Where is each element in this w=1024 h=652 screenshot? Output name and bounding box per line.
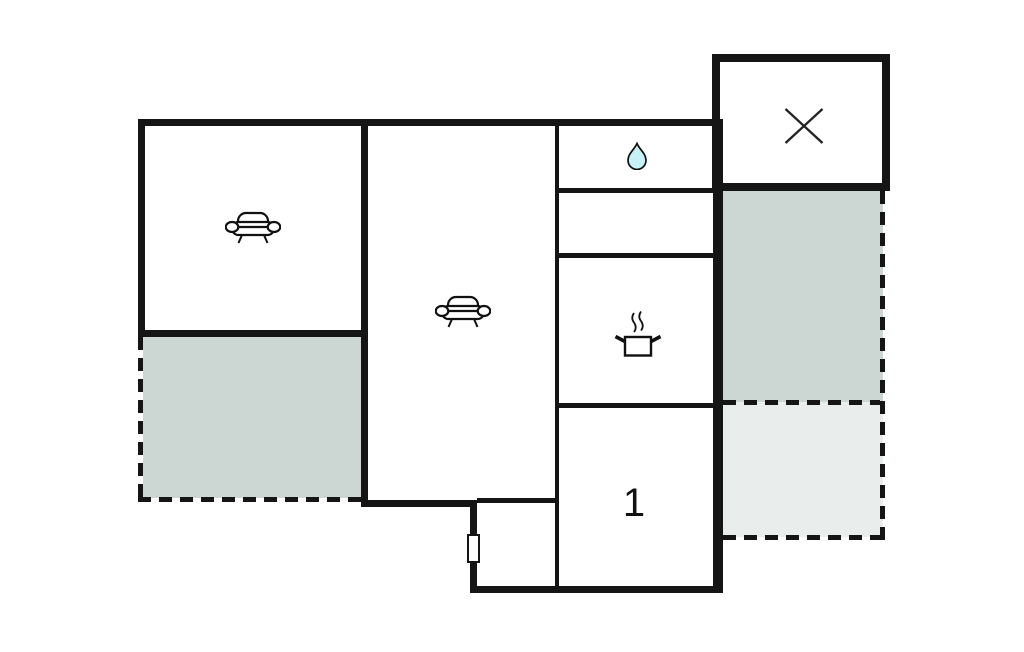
wall-entry-top xyxy=(477,498,555,503)
terrace-right-upper-area xyxy=(723,191,883,402)
wall-kitchen-bottom xyxy=(555,403,713,408)
wall-left-main xyxy=(138,119,145,337)
cooking-pot-icon xyxy=(609,308,667,360)
wall-bottom-main xyxy=(470,586,723,593)
dashed-edge-terrace-left-south xyxy=(138,497,364,502)
room-number-label: 1 xyxy=(555,481,713,526)
wall-left-center-divider xyxy=(361,119,368,507)
wall-bottom-step xyxy=(361,500,477,507)
x-icon xyxy=(784,107,824,145)
dashed-edge-terrace-left-west xyxy=(138,337,143,498)
wall-storage-bottom xyxy=(559,253,713,258)
floorplan-canvas: 1 xyxy=(0,0,1024,652)
dashed-edge-terrace-right-south xyxy=(723,535,885,540)
wall-xroom-left xyxy=(712,54,720,191)
wall-xroom-top xyxy=(712,54,890,62)
window-marker xyxy=(467,534,480,563)
room-storage xyxy=(559,193,713,253)
wall-top-main xyxy=(138,119,723,126)
sofa-icon xyxy=(435,294,491,332)
sofa-icon xyxy=(225,210,281,248)
wall-bathroom-bottom xyxy=(559,188,713,193)
terrace-left-area xyxy=(143,337,361,498)
dashed-edge-terrace-right-east xyxy=(880,191,885,540)
room-entry-vestibule xyxy=(477,503,555,586)
wall-xroom-bottom xyxy=(712,183,890,191)
terrace-right-lower-area xyxy=(723,402,883,537)
wall-leftroom-bottom xyxy=(138,330,368,337)
wall-xroom-right xyxy=(882,54,890,191)
dashed-edge-terrace-right-divider xyxy=(723,400,880,405)
water-drop-icon xyxy=(627,142,647,170)
